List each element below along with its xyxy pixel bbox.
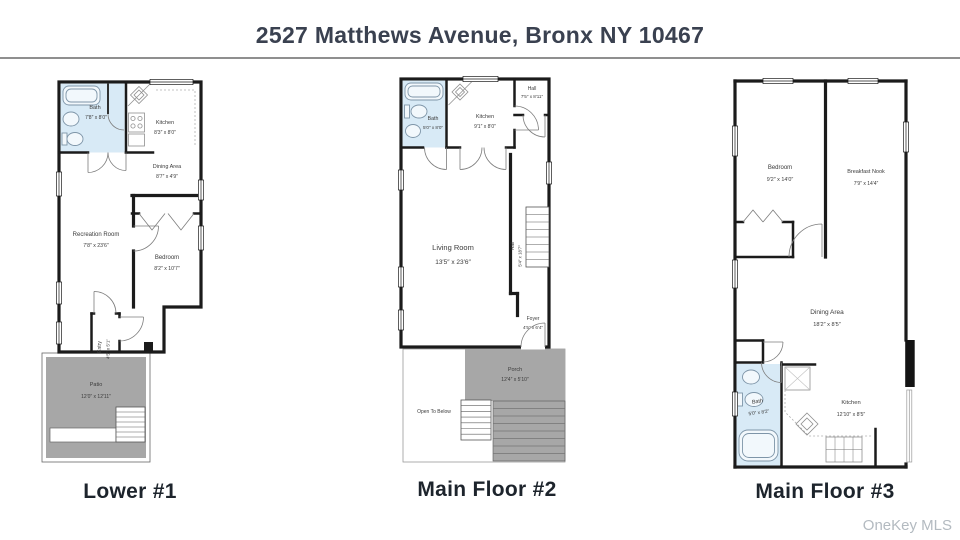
room-bedroom-dims: 9′2″ x 14′0″ — [767, 177, 794, 183]
room-nook-label: Breakfast Nook — [847, 169, 885, 175]
porch — [465, 349, 565, 401]
room-bedroom-dims: 8′2″ x 10′7″ — [154, 266, 180, 272]
room-entry-label: Entry — [97, 341, 103, 353]
floorplan-main-3: Bath 5′0″ x 8′2″ Kitchen 12′10″ x 8′5″ — [723, 74, 915, 472]
room-bedroom-label: Bedroom — [768, 165, 792, 171]
room-bedroom-label: Bedroom — [155, 255, 179, 261]
room-bath-dims: 5′0″ x 8′0″ — [423, 125, 443, 130]
floorplan-main-2: Porch 12′4″ x 5′10″ Open To Below Bath 5… — [393, 74, 573, 470]
room-kitchen-dims: 9′1″ x 8′0″ — [474, 124, 496, 130]
patio-stairs — [116, 407, 145, 442]
room-hall-dims: 7′5″ x 8′11″ — [521, 94, 544, 99]
room-nook-dims: 7′9″ x 14′4″ — [854, 181, 879, 187]
plan-label-main-3: Main Floor #3 — [750, 480, 900, 504]
room-kitchen-label: Kitchen — [156, 120, 174, 126]
room-bath-label: Bath — [428, 116, 439, 122]
room-hall-label: Hall — [528, 86, 537, 92]
structural-post — [144, 342, 153, 352]
room-patio-label: Patio — [90, 382, 103, 388]
room-entry-dims: 4′5″ x 5′1″ — [106, 339, 111, 359]
room-dining-dims: 8′7″ x 4′9″ — [156, 174, 178, 180]
floorplan-lower-1: Patio 12′0″ x 12′11″ Bath 7′8″ x 8′0″ — [38, 76, 208, 468]
room-bath: Bath 7′8″ x 8′0″ — [61, 84, 125, 153]
room-bath-dims: 7′8″ x 8′0″ — [85, 115, 107, 121]
room-porch-dims: 12′4″ x 5′10″ — [501, 377, 529, 383]
hall-stairs — [526, 207, 549, 267]
floorplan-sheet: 2527 Matthews Avenue, Bronx NY 10467 Pat… — [0, 0, 960, 540]
plan-label-lower-1: Lower #1 — [55, 480, 205, 504]
toilet-icon — [62, 133, 67, 145]
chimney-bumpout — [905, 340, 915, 387]
room-kitchen-label: Kitchen — [841, 400, 860, 406]
interior-stairs-down — [461, 400, 491, 440]
room-foyer-dims: 4′5″ x 6′4″ — [523, 325, 543, 330]
room-recreation-dims: 7′8″ x 23′6″ — [83, 243, 109, 249]
room-foyer-label: Foyer — [527, 316, 540, 322]
divider-line — [0, 57, 960, 59]
onekey-mls-watermark: OneKey MLS — [863, 517, 952, 534]
sink-icon — [406, 125, 421, 138]
room-dining-dims: 18′2″ x 8′5″ — [813, 322, 841, 328]
room-hall2-label: Hall — [510, 242, 515, 250]
room-bath-label: Bath — [89, 105, 100, 111]
room-bath: Bath 5′0″ x 8′2″ — [737, 364, 781, 466]
sink-icon — [743, 370, 760, 384]
toilet-icon — [405, 105, 410, 118]
room-kitchen-label: Kitchen — [476, 114, 494, 120]
lower-deck: Porch 12′4″ x 5′10″ Open To Below — [403, 349, 565, 462]
toilet-icon — [738, 393, 743, 406]
room-kitchen-dims: 12′10″ x 8′5″ — [837, 412, 866, 418]
room-hall2-dims: 5′4″ x 18′7″ — [518, 245, 523, 267]
sink-icon — [63, 112, 79, 126]
patio: Patio 12′0″ x 12′11″ — [42, 353, 150, 462]
open-to-below-label: Open To Below — [417, 409, 451, 415]
plan-label-main-2: Main Floor #2 — [412, 478, 562, 502]
room-living-dims: 13′5″ x 23′6″ — [435, 259, 471, 266]
room-dining-label: Dining Area — [153, 164, 182, 170]
room-recreation-label: Recreation Room — [73, 232, 120, 238]
page-title: 2527 Matthews Avenue, Bronx NY 10467 — [0, 22, 960, 49]
room-patio-dims: 12′0″ x 12′11″ — [81, 394, 111, 400]
glass-wall — [907, 390, 912, 462]
room-living-label: Living Room — [432, 243, 474, 252]
room-dining-label: Dining Area — [810, 309, 844, 316]
room-porch-label: Porch — [508, 367, 522, 373]
room-bath: Bath 5′0″ x 8′0″ — [403, 81, 446, 148]
room-kitchen-dims: 8′3″ x 8′0″ — [154, 130, 176, 136]
